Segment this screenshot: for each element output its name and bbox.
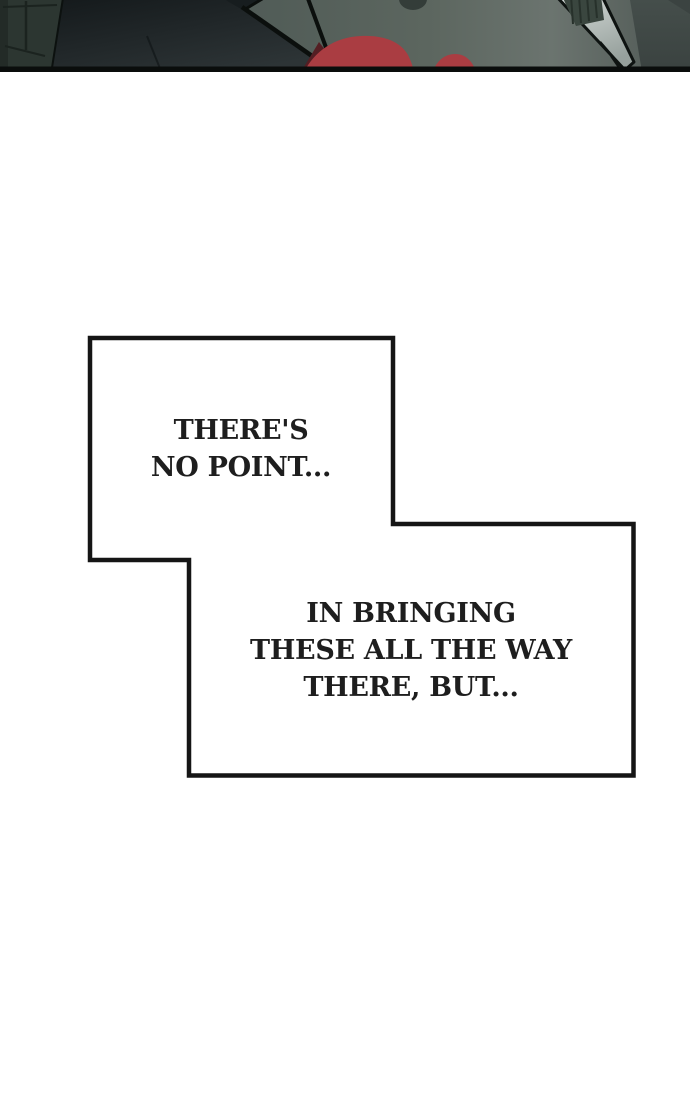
bubble-line: THERE'S [174, 412, 309, 449]
bubble-line: THESE ALL THE WAY [250, 632, 572, 669]
comic-page: THERE'S NO POINT... IN BRINGING THESE AL… [0, 0, 690, 1104]
bubble-line: NO POINT... [151, 449, 331, 486]
speech-bubble-2-text: IN BRINGING THESE ALL THE WAY THERE, BUT… [191, 527, 631, 773]
bubble-line: IN BRINGING [306, 595, 515, 632]
speech-bubble-1-text: THERE'S NO POINT... [92, 342, 390, 556]
bubble-line: THERE, BUT... [303, 669, 518, 706]
